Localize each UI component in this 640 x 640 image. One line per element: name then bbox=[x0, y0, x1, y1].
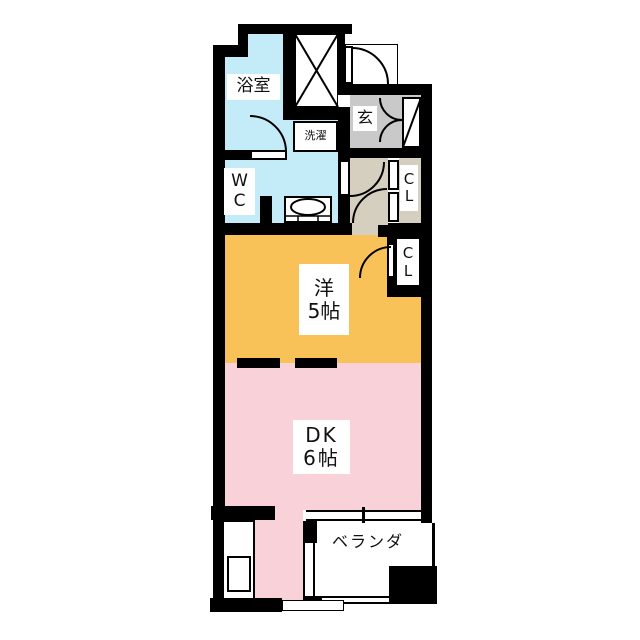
closet-western-label-line1: C bbox=[403, 245, 413, 262]
outer-wall-top bbox=[238, 24, 352, 34]
western-room-wall-top-right bbox=[378, 225, 388, 237]
closet-hall-door-leaf-upper bbox=[388, 160, 399, 190]
entrance-wall-top bbox=[345, 84, 432, 95]
wc-partition-stub bbox=[260, 196, 272, 235]
dining-kitchen-label-line1: DK bbox=[305, 424, 338, 447]
entrance-wall-bottom bbox=[338, 148, 432, 158]
bathroom-label: 浴室 bbox=[227, 74, 280, 100]
closet-hall-door-leaf-lower bbox=[388, 192, 399, 222]
wc-label-line1: W bbox=[231, 172, 248, 192]
shoe-cabinet bbox=[402, 97, 421, 148]
dining-kitchen-label-line2: 6帖 bbox=[303, 447, 340, 470]
kitchen-wall-stub bbox=[211, 506, 275, 520]
dining-kitchen-label: DK 6帖 bbox=[293, 420, 350, 474]
entrance-label-text: 玄 bbox=[357, 109, 373, 127]
balcony-railing-left-inner bbox=[313, 543, 315, 600]
wc-label: W C bbox=[224, 168, 255, 215]
closet-western-wall-bottom bbox=[387, 287, 432, 297]
balcony-post-top-left bbox=[303, 521, 317, 543]
washroom-door-leaf bbox=[339, 160, 350, 196]
laundry-label: 洗濯 bbox=[294, 122, 337, 151]
closet-western-label-line2: L bbox=[404, 263, 412, 280]
elevator-shaft-box bbox=[295, 34, 338, 107]
entrance-door-leaf bbox=[344, 46, 353, 84]
western-room-label-line2: 5帖 bbox=[308, 300, 341, 323]
room-divider-dash-1 bbox=[237, 358, 280, 368]
balcony-window-center-tick bbox=[362, 507, 365, 523]
balcony-railing-right bbox=[432, 523, 435, 567]
closet-hall-wall-bottom bbox=[388, 223, 432, 237]
bottom-wall-step bbox=[282, 600, 344, 611]
washbasin-box bbox=[284, 196, 332, 223]
floor-plan: 浴室 洗濯 玄 W C C L C L 洋 5帖 DK 6帖 ベランダ bbox=[0, 0, 640, 640]
wc-label-line2: C bbox=[234, 192, 246, 212]
closet-hall-label-line2: L bbox=[405, 188, 413, 205]
closet-hall-label-line1: C bbox=[404, 171, 414, 188]
bathroom-label-text: 浴室 bbox=[237, 77, 271, 97]
balcony-railing-bottom-inner bbox=[315, 596, 391, 598]
balcony-window-bottom bbox=[306, 519, 427, 521]
kitchen-sink bbox=[227, 556, 251, 592]
balcony-window-top bbox=[306, 510, 427, 512]
balcony-label-text: ベランダ bbox=[332, 533, 404, 551]
closet-western-door-leaf bbox=[387, 243, 395, 278]
entrance-label: 玄 bbox=[353, 106, 377, 131]
laundry-label-text: 洗濯 bbox=[305, 130, 327, 143]
western-room-label-line1: 洋 bbox=[314, 277, 334, 300]
sanitary-wall-bottom bbox=[213, 223, 352, 235]
closet-hall-label: C L bbox=[400, 165, 418, 211]
closet-western-label: C L bbox=[399, 240, 417, 285]
bathroom-wall-bottom bbox=[213, 150, 250, 160]
hallway-area bbox=[350, 158, 388, 235]
bathroom-door-leaf bbox=[250, 150, 287, 160]
shaft-wall-bottom bbox=[283, 107, 350, 120]
western-room-label: 洋 5帖 bbox=[299, 264, 349, 335]
balcony-pillar bbox=[389, 566, 437, 604]
room-divider-dash-2 bbox=[295, 358, 337, 368]
balcony-railing-left-outer bbox=[303, 543, 305, 600]
outer-wall-bottom bbox=[210, 598, 282, 612]
balcony-label: ベランダ bbox=[325, 530, 411, 554]
